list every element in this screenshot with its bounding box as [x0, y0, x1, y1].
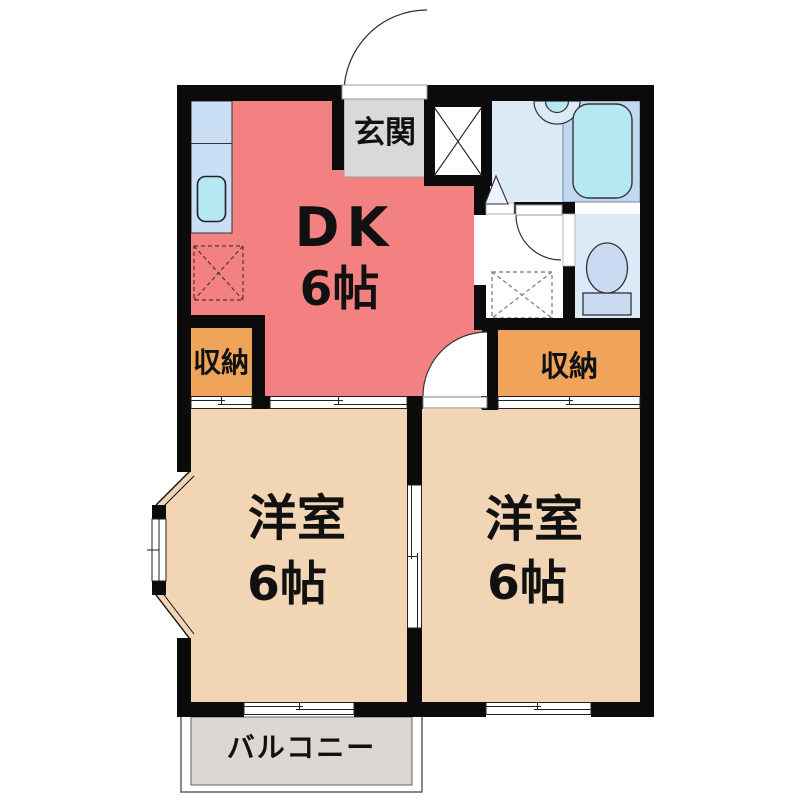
kitchen-sink-icon	[198, 177, 226, 222]
dk-label: DK	[275, 201, 415, 255]
room-left-size-label: 6帖	[197, 561, 377, 608]
wall-segment	[591, 702, 654, 717]
entrance-label: 玄関	[344, 118, 426, 149]
dk-room-left-sliding-door	[270, 397, 407, 409]
wall-segment	[407, 396, 422, 485]
wall-segment	[474, 318, 654, 330]
closet-left-label: 収納	[189, 349, 253, 377]
bathroom-door-threshold	[486, 203, 514, 214]
room-left-balcony-window	[244, 703, 354, 715]
wall-segment	[252, 315, 265, 409]
wall-segment	[332, 98, 344, 170]
wall-segment	[407, 628, 422, 717]
wall-segment	[640, 85, 654, 717]
floorplan: 玄関 DK 6帖 収納 収納 洋室 6帖 洋室 6帖 バルコニー	[0, 0, 800, 800]
shoe-cabinet-icon	[430, 102, 487, 181]
room-right-label: 洋室	[444, 495, 624, 544]
bathtub-icon	[573, 104, 632, 198]
room-right-size-label: 6帖	[437, 560, 617, 607]
toilet-icon	[583, 243, 631, 315]
room-right-window	[486, 703, 591, 715]
room-right-door-threshold	[423, 397, 487, 408]
rooms-divider-sliding-door	[408, 485, 422, 628]
wall-segment	[152, 505, 166, 519]
closet-right-sliding-door	[498, 397, 640, 409]
room-left-label: 洋室	[207, 494, 387, 543]
wall-segment	[177, 315, 265, 328]
washroom-door-leaf	[516, 205, 562, 215]
closet-right-label: 収納	[498, 352, 640, 381]
balcony-label: バルコニー	[191, 734, 412, 762]
wall-segment	[177, 702, 244, 717]
wall-segment	[252, 396, 270, 409]
wall-segment	[474, 202, 486, 215]
toilet-doorway	[563, 214, 575, 266]
kitchen-counter-icon	[191, 101, 232, 233]
wall-segment	[563, 202, 575, 214]
wall-segment	[152, 581, 166, 595]
entrance-door-leaf	[342, 85, 427, 99]
toilet-tank	[583, 293, 631, 315]
room-left-floor	[191, 409, 407, 702]
entrance-door-arc	[344, 10, 427, 93]
entrance-door	[342, 10, 427, 99]
dk-size-label: 6帖	[272, 266, 407, 313]
window-frame	[486, 703, 591, 715]
closet-left-sliding-door	[191, 397, 252, 409]
wall-segment	[474, 285, 486, 318]
wall-segment	[177, 85, 191, 472]
wall-segment	[177, 85, 344, 101]
toilet-bowl	[587, 243, 628, 293]
